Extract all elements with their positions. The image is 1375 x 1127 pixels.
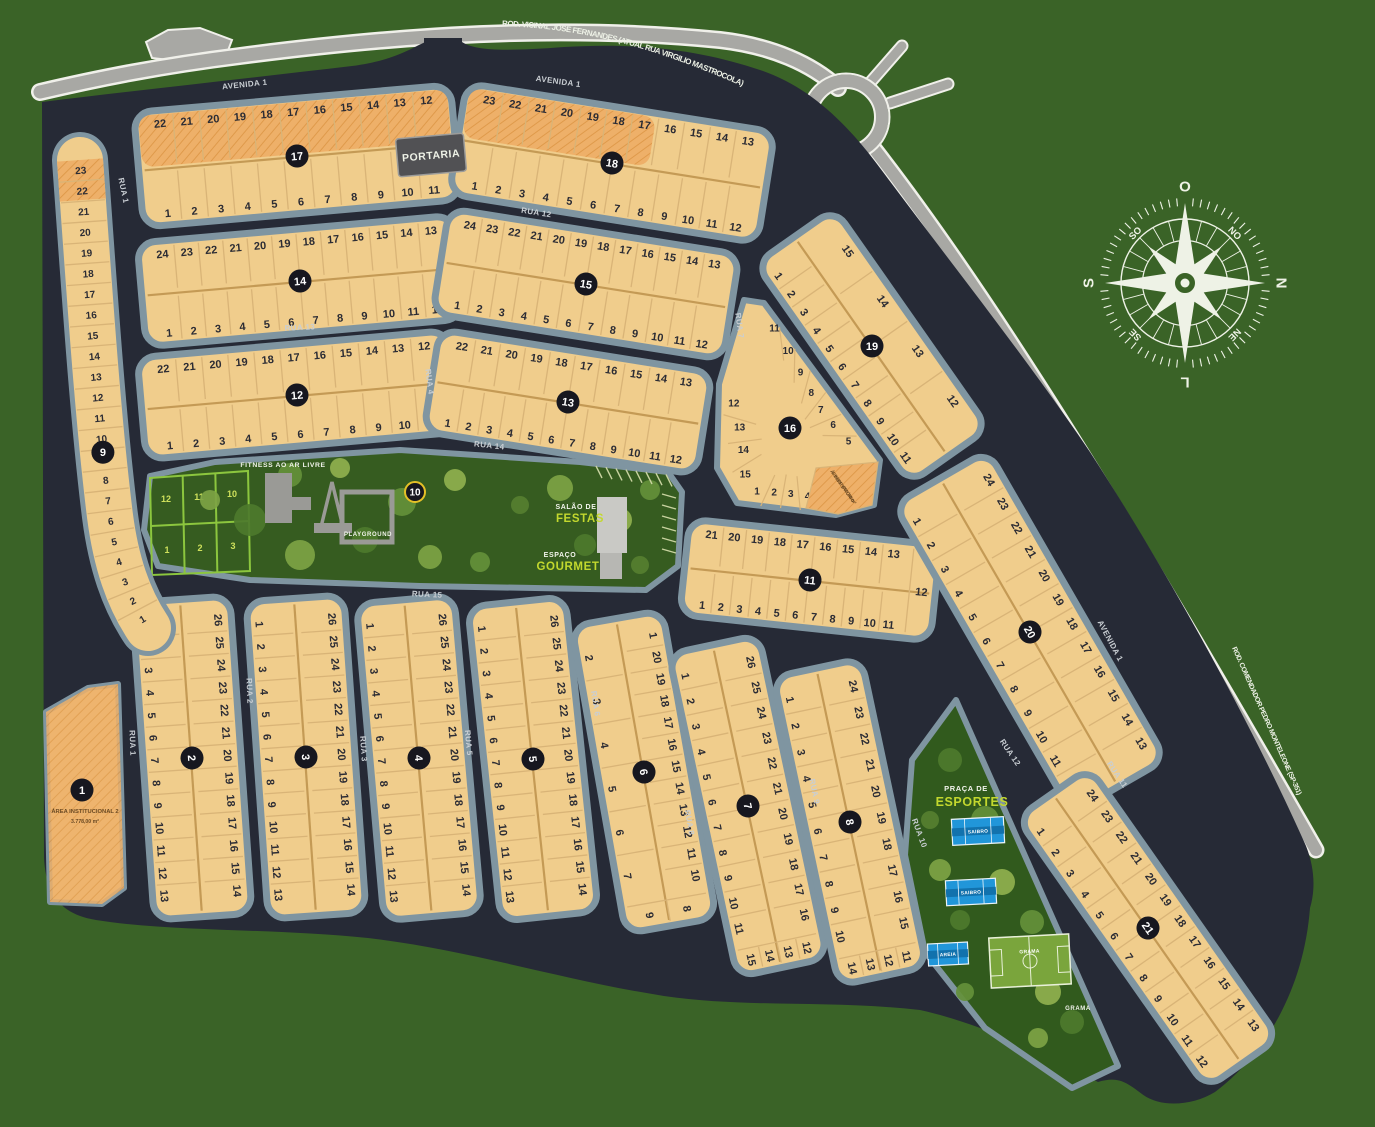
lot-number: 12 xyxy=(728,398,740,409)
block-18-badge-number: 18 xyxy=(605,157,619,171)
block-2-badge-number: 2 xyxy=(185,755,197,762)
lot-number: 21 xyxy=(705,529,718,542)
sport-court: SAIBRO xyxy=(945,878,996,906)
lot-number: 16 xyxy=(85,310,97,322)
lot-number: 6 xyxy=(297,429,304,441)
lot-number: 13 xyxy=(271,888,284,901)
lot-number: 12 xyxy=(881,953,895,967)
leisure-lot-number: 10 xyxy=(227,489,237,499)
lot-number: 22 xyxy=(157,363,170,376)
block-10-badge-number: 10 xyxy=(409,488,421,499)
tree-icon xyxy=(1020,910,1044,934)
lot-number: 16 xyxy=(663,123,677,137)
lot-number: 2 xyxy=(717,602,724,615)
lot-number: 23 xyxy=(759,731,773,745)
lot-number: 26 xyxy=(436,613,449,626)
tree-icon xyxy=(511,496,529,514)
lot-number: 20 xyxy=(209,358,222,371)
lot-number: 13 xyxy=(503,890,516,903)
lot-number: 21 xyxy=(770,781,784,795)
sport-court: AREIA xyxy=(927,942,968,966)
lot-number: 17 xyxy=(453,816,466,829)
lot-number: 20 xyxy=(207,113,220,126)
lot-number: 15 xyxy=(573,860,586,873)
lot-number: 5 xyxy=(371,713,383,720)
lot-number: 5 xyxy=(145,712,157,719)
compass-letter: O xyxy=(1179,178,1191,195)
lot-number: 2 xyxy=(254,643,266,650)
lot-number: 13 xyxy=(863,957,877,971)
lot-number: 14 xyxy=(400,227,414,240)
lot-number: 17 xyxy=(568,816,581,829)
lot-number: 17 xyxy=(661,716,675,730)
tree-icon xyxy=(330,458,350,478)
tree-icon xyxy=(234,504,266,536)
lot-number: 9 xyxy=(361,310,368,322)
tree-icon xyxy=(921,811,939,829)
lot-number: 8 xyxy=(377,780,389,787)
lot-number: 14 xyxy=(864,546,878,559)
lot-number: 15 xyxy=(740,469,752,480)
lot-number: 15 xyxy=(896,916,910,930)
lot-number: 19 xyxy=(781,832,795,846)
tree-icon xyxy=(574,534,596,556)
block-12-badge-number: 12 xyxy=(290,389,303,402)
court-label: SAIBRO xyxy=(968,828,989,835)
lot-number: 15 xyxy=(841,543,854,556)
lot-number: 7 xyxy=(148,757,160,764)
lot-number: 21 xyxy=(183,361,196,374)
lot-number: 18 xyxy=(566,793,579,806)
lot-number: 13 xyxy=(393,97,406,110)
lot-number: 5 xyxy=(271,431,278,443)
block-16-badge: 16 xyxy=(779,417,802,440)
lot-number: 24 xyxy=(552,659,565,673)
lot-number: 1 xyxy=(475,625,488,632)
tree-icon xyxy=(470,552,490,572)
lot-number: 18 xyxy=(596,240,610,254)
block-17-badge-number: 17 xyxy=(290,150,303,163)
lot-number: 12 xyxy=(156,867,169,880)
lot-number: 10 xyxy=(401,186,414,199)
lot-number: 25 xyxy=(549,637,562,650)
lot-number: 16 xyxy=(890,890,904,904)
lot-number: 22 xyxy=(857,732,871,746)
lot-number: 7 xyxy=(810,611,817,624)
block-19-badge-number: 19 xyxy=(866,341,878,353)
lot-number: 15 xyxy=(340,101,353,114)
leisure-lot-number: 1 xyxy=(164,545,169,555)
lot-number: 22 xyxy=(153,118,166,131)
playground-label: PLAYGROUND xyxy=(344,532,392,538)
lot-number: 11 xyxy=(899,950,913,964)
lot-number: 5 xyxy=(846,436,852,447)
lot-number: 8 xyxy=(808,388,814,399)
lot-number: 8 xyxy=(491,782,504,789)
lot-number: 1 xyxy=(167,440,174,452)
lot-number: 21 xyxy=(534,102,548,116)
lot-number: 21 xyxy=(559,726,572,739)
lot-number: 14 xyxy=(738,445,750,456)
lot-number: 25 xyxy=(748,680,762,694)
street-label: RUA 3 xyxy=(358,736,369,762)
lot-number: 11 xyxy=(428,184,441,197)
lot-number: 1 xyxy=(252,621,264,628)
lot-number: 18 xyxy=(773,536,786,549)
tree-icon xyxy=(418,545,442,569)
lot-number: 12 xyxy=(384,867,397,880)
lot-number: 20 xyxy=(253,240,266,253)
lot-number: 20 xyxy=(221,749,234,762)
lot-number: 5 xyxy=(271,198,278,210)
leisure-lot-number: 12 xyxy=(161,494,171,504)
lot-number: 12 xyxy=(799,941,813,955)
lot-number: 9 xyxy=(847,615,854,628)
lot-number: 15 xyxy=(342,861,355,874)
lot-number: 3 xyxy=(788,489,794,500)
compass-letter: S xyxy=(1080,278,1097,288)
lot-number: 13 xyxy=(90,372,102,384)
lot-number: 1 xyxy=(754,487,760,498)
lot-number: 17 xyxy=(618,244,632,258)
lot-number: 7 xyxy=(323,426,330,438)
lot-number: 17 xyxy=(84,289,96,301)
lot-number: 16 xyxy=(819,541,832,554)
lot-number: 2 xyxy=(365,645,377,652)
court-label: AREIA xyxy=(940,952,957,959)
lot-number: 9 xyxy=(265,801,277,808)
lot-number: 7 xyxy=(489,759,502,766)
lot-number: 15 xyxy=(339,347,352,360)
street-label: RUA 2 xyxy=(245,678,255,704)
lot-number: 6 xyxy=(830,420,836,431)
lot-number: 13 xyxy=(734,422,746,433)
lot-number: 23 xyxy=(330,680,343,693)
lot-number: 20 xyxy=(561,749,574,762)
lot-number: 14 xyxy=(88,351,100,363)
espaco-label-1: ESPAÇO xyxy=(544,552,577,559)
court-label: SAIBRO xyxy=(961,889,982,896)
lot-number: 15 xyxy=(743,953,757,967)
lot-number: 10 xyxy=(832,929,846,943)
lot-number: 23 xyxy=(180,246,193,259)
masterplan: 121110123FITNESS AO AR LIVREPLAYGROUNDSA… xyxy=(0,0,1375,1127)
lot-number: 20 xyxy=(552,233,566,247)
block-11-badge-number: 11 xyxy=(803,574,816,587)
lot-number: 22 xyxy=(507,226,521,240)
block-16-badge-number: 16 xyxy=(784,423,796,435)
lot-number: 11 xyxy=(94,413,106,425)
lot-number: 1 xyxy=(363,623,375,630)
lot-number: 22 xyxy=(455,340,469,354)
lot-number: 8 xyxy=(337,312,344,324)
lot-number: 20 xyxy=(79,227,91,239)
lot-number: 8 xyxy=(351,191,358,203)
lot-number: 5 xyxy=(484,715,497,722)
lot-number: 6 xyxy=(373,735,385,742)
tree-icon xyxy=(200,490,220,510)
lot-number: 19 xyxy=(530,352,544,366)
lot-number: 2 xyxy=(771,488,777,499)
lot-number: 19 xyxy=(874,811,888,825)
lot-number: 13 xyxy=(781,945,795,959)
lot-number: 14 xyxy=(366,99,380,112)
lot-number: 3 xyxy=(219,435,226,447)
lot-number: 11 xyxy=(498,846,511,859)
lot-number: 13 xyxy=(679,376,693,390)
lot-number: 3 xyxy=(736,603,743,616)
lot-number: 22 xyxy=(76,186,88,198)
block-10-badge: 10 xyxy=(405,482,425,502)
lot-number: 26 xyxy=(211,614,224,627)
lot-number: 10 xyxy=(382,308,395,321)
lot-number: 23 xyxy=(75,165,87,177)
lot-number: 15 xyxy=(669,759,683,773)
block-15-badge-number: 15 xyxy=(579,278,593,292)
lot-number: 16 xyxy=(455,838,468,851)
lot-number: 10 xyxy=(381,822,394,835)
salao-building xyxy=(597,497,627,553)
lot-number: 11 xyxy=(383,845,396,858)
lot-number: 16 xyxy=(313,104,326,117)
lot-number: 15 xyxy=(689,127,703,141)
compass-letter: N xyxy=(1273,278,1290,289)
lot-number: 3 xyxy=(218,203,225,215)
lot-number: 5 xyxy=(773,607,780,620)
block-3: 2625242322212019181716151412345678910111… xyxy=(246,595,366,919)
lot-number: 14 xyxy=(575,883,588,897)
block-19-badge: 19 xyxy=(861,335,884,358)
lot-number: 18 xyxy=(612,115,626,129)
lot-number: 16 xyxy=(227,839,240,852)
lot-number: 17 xyxy=(637,119,651,133)
lot-number: 25 xyxy=(213,636,226,649)
lot-number: 19 xyxy=(235,356,248,369)
lot-number: 13 xyxy=(424,225,437,238)
tree-icon xyxy=(631,556,649,574)
lot-number: 19 xyxy=(336,771,349,784)
lot-number: 5 xyxy=(263,319,270,331)
lot-number: 13 xyxy=(386,890,399,903)
lot-number: 20 xyxy=(560,106,574,120)
lot-number: 10 xyxy=(681,214,695,228)
fitness-structure-2 xyxy=(291,497,311,510)
compass-letter: L xyxy=(1180,374,1189,391)
salao-label-2: FESTAS xyxy=(556,513,604,525)
lot-number: 21 xyxy=(78,207,90,219)
lot-number: 15 xyxy=(629,368,643,382)
lot-number: 6 xyxy=(146,735,158,742)
lot-number: 23 xyxy=(485,223,499,237)
lot-number: 22 xyxy=(765,756,779,770)
lot-number: 21 xyxy=(863,758,877,772)
praca-label-2: ESPORTES xyxy=(936,795,1009,809)
lot-number: 12 xyxy=(695,338,709,352)
lot-number: 20 xyxy=(728,531,741,544)
lot-number: 24 xyxy=(214,659,227,673)
street-label: RUA 15 xyxy=(412,589,443,600)
masterplan-map: 121110123FITNESS AO AR LIVREPLAYGROUNDSA… xyxy=(0,0,1375,1127)
lot-number: 12 xyxy=(669,453,683,467)
espaco-label-2: GOURMET xyxy=(537,561,600,573)
lot-number: 22 xyxy=(331,703,344,716)
lot-number: 18 xyxy=(786,857,800,871)
lot-number: 14 xyxy=(365,345,379,358)
lot-number: 11 xyxy=(407,306,420,319)
lot-number: 20 xyxy=(868,784,882,798)
lot-number: 19 xyxy=(449,771,462,784)
lot-number: 26 xyxy=(743,655,757,669)
lot-number: 23 xyxy=(441,681,454,694)
lot-number: 18 xyxy=(302,236,315,249)
lot-number: 9 xyxy=(798,368,804,379)
fitness-label: FITNESS AO AR LIVRE xyxy=(240,462,325,469)
lot-number: 21 xyxy=(180,115,193,128)
lot-number: 21 xyxy=(333,725,346,738)
lot-number: 6 xyxy=(792,609,799,622)
lot-number: 24 xyxy=(439,658,452,672)
area-institucional-size: 3.778,00 m² xyxy=(71,819,99,825)
lot-number: 11 xyxy=(731,922,745,936)
lot-number: 17 xyxy=(885,863,899,877)
lot-number: 21 xyxy=(480,344,494,358)
lot-number: 6 xyxy=(297,196,304,208)
lot-number: 23 xyxy=(216,681,229,694)
lot-number: 12 xyxy=(728,221,742,235)
lot-number: 18 xyxy=(260,108,273,121)
block-5-badge-number: 5 xyxy=(526,755,539,762)
lot-number: 9 xyxy=(375,422,382,434)
lot-number: 10 xyxy=(650,331,664,345)
lot-number: 11 xyxy=(673,334,686,348)
lot-number: 19 xyxy=(653,672,667,686)
tree-icon xyxy=(285,540,315,570)
lot-number: 7 xyxy=(262,756,274,763)
lot-number: 18 xyxy=(338,793,351,806)
lot-number: 9 xyxy=(377,189,384,201)
lot-number: 17 xyxy=(287,352,300,365)
lot-number: 21 xyxy=(219,726,232,739)
lot-number: 16 xyxy=(665,738,679,752)
lot-number: 11 xyxy=(705,218,718,232)
sport-court: SAIBRO xyxy=(951,817,1004,846)
lot-number: 16 xyxy=(641,247,655,261)
lot-number: 7 xyxy=(324,194,331,206)
lot-number: 6 xyxy=(260,734,272,741)
lot-number: 18 xyxy=(82,269,94,281)
lot-number: 7 xyxy=(375,758,387,765)
lot-number: 2 xyxy=(477,648,490,655)
lot-number: 9 xyxy=(379,803,391,810)
lot-number: 22 xyxy=(443,703,456,716)
tree-icon xyxy=(950,910,970,930)
lot-number: 8 xyxy=(349,424,356,436)
lot-number: 9 xyxy=(494,804,507,811)
lot-number: 7 xyxy=(818,405,824,416)
street-label: RUA 13 xyxy=(284,322,315,333)
lot-number: 12 xyxy=(418,340,431,353)
lot-number: 15 xyxy=(457,861,470,874)
lot-number: 1 xyxy=(166,327,173,339)
lot-number: 17 xyxy=(327,233,340,246)
lot-number: 20 xyxy=(775,807,789,821)
lot-number: 10 xyxy=(152,822,165,835)
lot-number: 20 xyxy=(447,748,460,761)
lot-number: 15 xyxy=(375,229,388,242)
block-9-badge: 9 xyxy=(91,441,114,464)
lot-number: 12 xyxy=(420,95,433,108)
lot-number: 10 xyxy=(688,869,702,883)
lot-number: 19 xyxy=(278,238,291,251)
lot-number: 18 xyxy=(224,794,237,807)
lot-number: 15 xyxy=(663,251,677,265)
lot-number: 19 xyxy=(750,534,763,547)
block-1-area-institucional: 1ÁREA INSTITUCIONAL 23.778,00 m² xyxy=(46,684,124,904)
lot-number: 3 xyxy=(142,667,154,674)
lot-number: 25 xyxy=(327,635,340,648)
lot-number: 20 xyxy=(335,748,348,761)
lot-number: 24 xyxy=(156,248,170,261)
lot-number: 19 xyxy=(81,248,93,260)
lot-number: 21 xyxy=(445,726,458,739)
tree-icon xyxy=(547,475,573,501)
lot-number: 19 xyxy=(233,111,246,124)
lot-number: 2 xyxy=(193,438,200,450)
lot-number: 3 xyxy=(480,670,493,677)
lot-number: 19 xyxy=(564,771,577,784)
lot-number: 11 xyxy=(154,845,167,857)
salao-label-1: SALÃO DE xyxy=(556,502,597,511)
lot-number: 15 xyxy=(228,862,241,875)
lot-number: 14 xyxy=(344,883,357,897)
lot-number: 18 xyxy=(879,837,893,851)
lot-number: 11 xyxy=(268,844,281,856)
lot-number: 22 xyxy=(217,704,230,717)
tree-icon xyxy=(640,480,660,500)
lot-number: 16 xyxy=(797,908,811,922)
lot-number: 12 xyxy=(500,868,513,881)
lot-number: 22 xyxy=(508,98,522,112)
block-1-badge-number: 1 xyxy=(79,785,85,797)
lot-number: 16 xyxy=(571,838,584,851)
praca-label-1: PRAÇA DE xyxy=(944,784,988,793)
lot-number: 17 xyxy=(287,106,300,119)
lot-number: 19 xyxy=(222,772,235,785)
lot-number: 22 xyxy=(557,704,570,717)
lot-number: 17 xyxy=(225,817,238,830)
lot-number: 26 xyxy=(547,615,560,628)
lot-number: 1 xyxy=(698,600,705,613)
lot-number: 19 xyxy=(574,237,588,251)
lot-number: 5 xyxy=(259,711,271,718)
lot-number: 8 xyxy=(263,779,275,786)
portaria: PORTARIA xyxy=(395,133,466,177)
lot-number: 12 xyxy=(270,866,283,879)
lot-number: 11 xyxy=(882,619,895,632)
lot-number: 10 xyxy=(863,617,876,630)
tree-icon xyxy=(444,469,466,491)
lot-number: 9 xyxy=(151,802,163,809)
tree-icon xyxy=(929,859,951,881)
lot-number: 2 xyxy=(191,205,198,217)
lot-number: 11 xyxy=(648,450,661,464)
lot-number: 10 xyxy=(266,821,279,834)
lot-number: 23 xyxy=(554,682,567,695)
lot-number: 1 xyxy=(164,208,171,220)
leisure-lot-number: 2 xyxy=(197,543,202,553)
field-label: GRAMA xyxy=(1019,948,1040,955)
fitness-structure xyxy=(265,473,292,523)
